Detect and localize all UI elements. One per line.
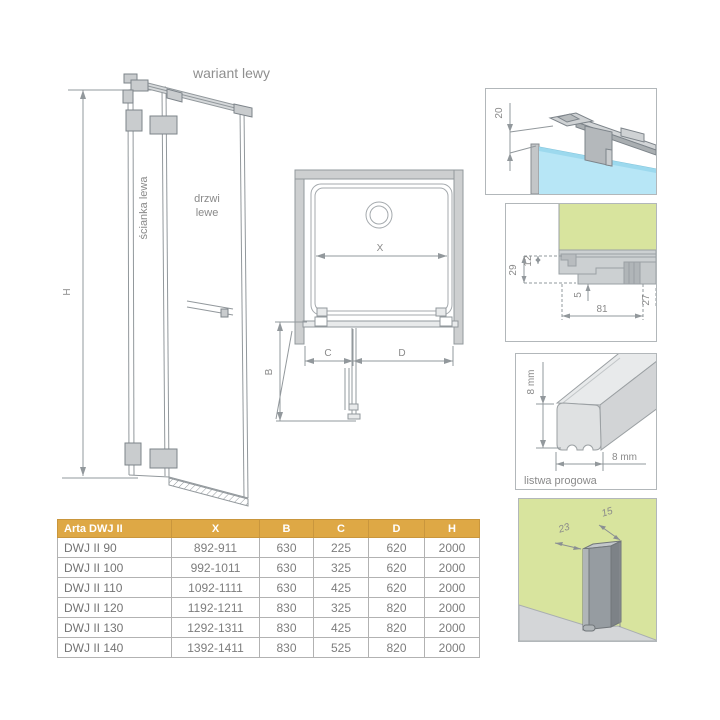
dim-12-label: 12 — [523, 255, 534, 267]
table-cell: 2000 — [425, 598, 480, 618]
threshold-width-label: 8 mm — [612, 452, 637, 463]
dim-29-label: 29 — [508, 264, 519, 276]
table-cell: 325 — [314, 598, 369, 618]
table-cell: 2000 — [425, 618, 480, 638]
table-header-x: X — [172, 520, 260, 538]
table-cell: 2000 — [425, 558, 480, 578]
threshold-prism — [557, 354, 656, 450]
table-cell: 820 — [369, 598, 425, 618]
table-cell: 1292-1311 — [172, 618, 260, 638]
plan-door-dim-label: D — [398, 348, 405, 359]
front-height-dim-label: H — [62, 288, 73, 295]
threshold-height-label: 8 mm — [526, 370, 537, 395]
table-cell: 620 — [369, 578, 425, 598]
table-cell: 1092-1111 — [172, 578, 260, 598]
detail-top-clamp-drawing: 20 — [486, 89, 656, 194]
table-cell: DWJ II 100 — [58, 558, 172, 578]
table-row: DWJ II 130 1292-1311 830 425 820 2000 — [58, 618, 480, 638]
table-cell: 325 — [314, 558, 369, 578]
table-cell: 820 — [369, 638, 425, 658]
table-cell: 830 — [260, 598, 314, 618]
plan-view-lines — [275, 170, 463, 421]
detail-top-clamp-panel: 20 — [485, 88, 657, 195]
detail-threshold-drawing: 8 mm 8 mm listwa progowa — [516, 354, 656, 489]
table-cell: 2000 — [425, 638, 480, 658]
detail-wall-profile-drawing: 23 15 — [519, 499, 656, 641]
table-row: DWJ II 120 1192-1211 830 325 820 2000 — [58, 598, 480, 618]
product-sheet: wariant lewy — [0, 0, 720, 720]
table-row: DWJ II 140 1392-1411 830 525 820 2000 — [58, 638, 480, 658]
table-cell: 2000 — [425, 538, 480, 558]
table-cell: 630 — [260, 558, 314, 578]
table-cell: 630 — [260, 578, 314, 598]
profile-width-label: 15 — [600, 506, 614, 520]
table-cell: 1192-1211 — [172, 598, 260, 618]
door-handle — [187, 301, 233, 317]
table-cell: 225 — [314, 538, 369, 558]
profile-section — [559, 250, 656, 284]
plan-view-drawing: X C D B — [260, 150, 480, 430]
dimensions-table: Arta DWJ II X B C D H DWJ II 90 892-911 … — [57, 519, 480, 658]
table-header-h: H — [425, 520, 480, 538]
table-header-c: C — [314, 520, 369, 538]
plan-fixed-dim-label: C — [324, 348, 331, 359]
table-cell: 525 — [314, 638, 369, 658]
table-header-b: B — [260, 520, 314, 538]
plan-width-dim-label: X — [377, 243, 384, 254]
table-cell: 892-911 — [172, 538, 260, 558]
door-label-line1: drzwi — [194, 193, 220, 205]
front-view-brackets — [123, 74, 252, 468]
table-cell: 425 — [314, 578, 369, 598]
wall-profile-box — [583, 541, 621, 631]
table-cell: DWJ II 90 — [58, 538, 172, 558]
table-cell: 1392-1411 — [172, 638, 260, 658]
front-view-lines — [62, 74, 252, 506]
table-cell: 620 — [369, 558, 425, 578]
table-cell: DWJ II 120 — [58, 598, 172, 618]
table-cell: 830 — [260, 618, 314, 638]
dim-5-label: 5 — [573, 292, 584, 298]
wall-green-area — [559, 204, 656, 250]
table-cell: DWJ II 130 — [58, 618, 172, 638]
detail-wall-section-drawing: 29 12 5 81 27 — [506, 204, 656, 341]
detail-wall-section-panel: 29 12 5 81 27 — [505, 203, 657, 342]
table-header-product: Arta DWJ II — [58, 520, 172, 538]
table-row: DWJ II 100 992-1011 630 325 620 2000 — [58, 558, 480, 578]
table-cell: 425 — [314, 618, 369, 638]
table-cell: 830 — [260, 638, 314, 658]
table-cell: 992-1011 — [172, 558, 260, 578]
table-row: DWJ II 90 892-911 630 225 620 2000 — [58, 538, 480, 558]
table-cell: 630 — [260, 538, 314, 558]
clamp-dim-label: 20 — [494, 107, 505, 119]
table-header-d: D — [369, 520, 425, 538]
dim-81-label: 81 — [596, 304, 608, 315]
table-cell: 820 — [369, 618, 425, 638]
door-label-line2: lewe — [196, 207, 219, 219]
threshold-caption: listwa progowa — [524, 475, 598, 487]
table-cell: 620 — [369, 538, 425, 558]
detail-wall-profile-panel: 23 15 — [518, 498, 657, 642]
table-row: DWJ II 110 1092-1111 630 425 620 2000 — [58, 578, 480, 598]
table-cell: DWJ II 140 — [58, 638, 172, 658]
plan-swing-dim-label: B — [264, 368, 275, 375]
fixed-wall-label: ścianka lewa — [138, 176, 150, 240]
dim-27-label: 27 — [641, 294, 652, 306]
profile-depth-label: 23 — [556, 522, 571, 536]
table-cell: DWJ II 110 — [58, 578, 172, 598]
table-cell: 2000 — [425, 578, 480, 598]
detail-threshold-panel: 8 mm 8 mm listwa progowa — [515, 353, 657, 490]
table-header-row: Arta DWJ II X B C D H — [58, 520, 480, 538]
